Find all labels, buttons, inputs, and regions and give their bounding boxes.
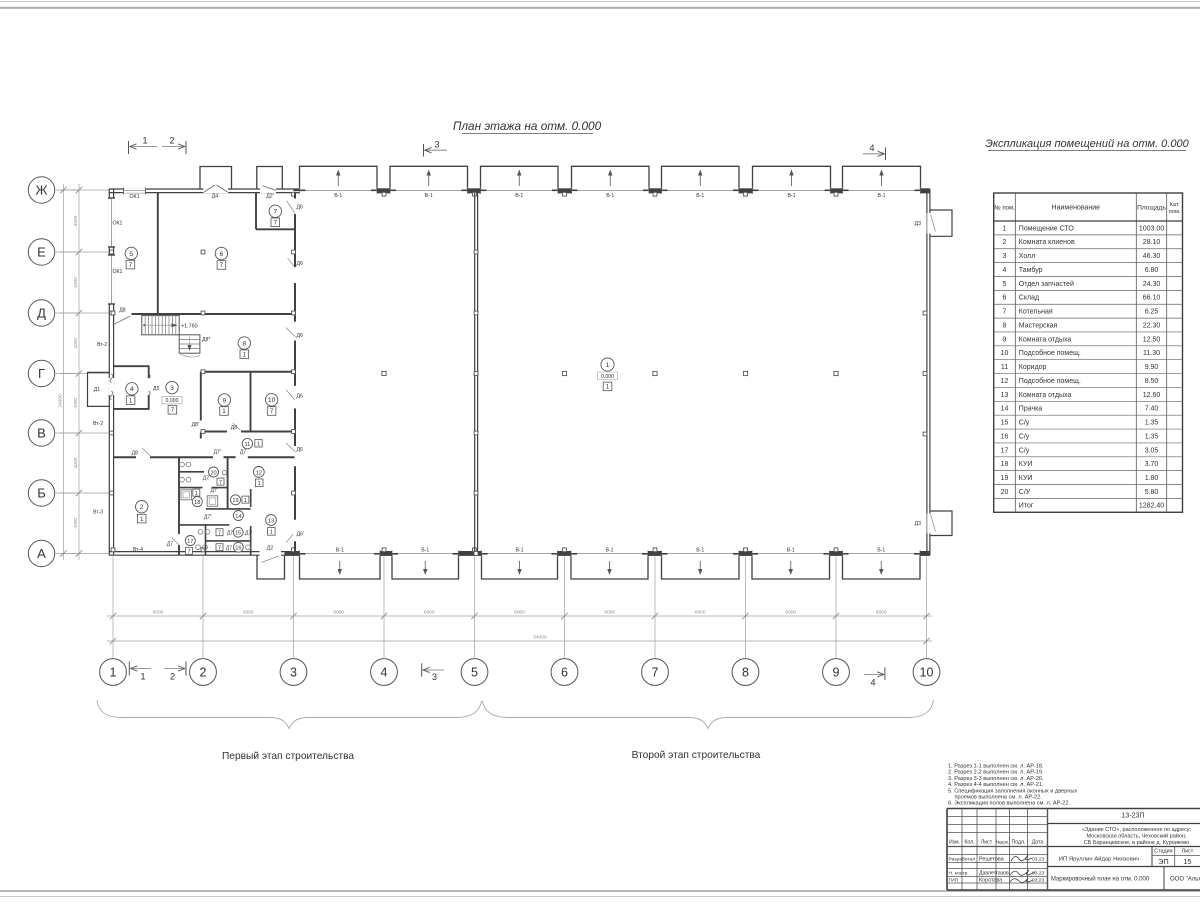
svg-text:6: 6	[220, 251, 224, 258]
svg-text:7: 7	[274, 220, 278, 227]
svg-text:12: 12	[256, 470, 262, 476]
svg-text:Помещение СТО: Помещение СТО	[1019, 225, 1075, 232]
svg-text:Д7": Д7"	[204, 515, 212, 521]
svg-text:СБ Баранцевское, в районе д. К: СБ Баранцевское, в районе д. Курниково	[1084, 839, 1189, 846]
svg-text:6000: 6000	[876, 610, 887, 616]
svg-text:28.10: 28.10	[1143, 239, 1161, 246]
svg-text:11: 11	[1001, 364, 1008, 371]
svg-text:1282.40: 1282.40	[1139, 503, 1164, 510]
svg-text:Д7: Д7	[226, 546, 232, 552]
svg-text:10: 10	[268, 397, 276, 404]
svg-text:1: 1	[270, 530, 273, 536]
svg-text:54000: 54000	[533, 635, 547, 641]
svg-text:1: 1	[606, 384, 610, 391]
svg-text:4000: 4000	[73, 277, 79, 288]
svg-text:7: 7	[218, 530, 221, 536]
svg-text:Д8: Д8	[119, 308, 126, 314]
svg-text:1: 1	[110, 666, 117, 680]
svg-text:Д8: Д8	[132, 451, 139, 457]
svg-text:03.23: 03.23	[1032, 871, 1045, 877]
svg-text:Подсобное помещ.: Подсобное помещ.	[1019, 349, 1081, 357]
svg-text:Комната клиенов: Комната клиенов	[1019, 239, 1075, 246]
svg-text:Экспликация помещений на отм.: Экспликация помещений на отм. 0.000	[985, 138, 1189, 150]
svg-text:4: 4	[869, 143, 874, 153]
svg-text:15: 15	[1001, 420, 1009, 427]
svg-text:17: 17	[1001, 447, 1009, 454]
svg-text:ГИП: ГИП	[949, 878, 959, 884]
svg-text:2: 2	[200, 666, 207, 680]
svg-text:1. Разрез 1-1 выполнен см. л.: 1. Разрез 1-1 выполнен см. л. АР-18.	[948, 764, 1044, 770]
svg-text:6000: 6000	[243, 610, 254, 616]
svg-text:Кат.: Кат.	[1170, 202, 1180, 208]
svg-text:2: 2	[1003, 239, 1007, 246]
svg-text:Д6: Д6	[297, 261, 304, 267]
svg-text:20: 20	[1001, 489, 1009, 496]
svg-text:В-1: В-1	[877, 548, 885, 554]
svg-text:Подл.: Подл.	[1012, 840, 1026, 846]
svg-text:Коридор: Коридор	[1019, 364, 1047, 371]
svg-text:3: 3	[1003, 253, 1007, 260]
svg-text:Подсобное помещ.: Подсобное помещ.	[1019, 377, 1081, 385]
svg-text:2: 2	[170, 672, 175, 682]
svg-text:20: 20	[210, 470, 216, 476]
svg-text:ЭП: ЭП	[1158, 857, 1169, 866]
svg-text:Тамбур: Тамбур	[1019, 266, 1043, 274]
svg-text:Вт-2: Вт-2	[97, 342, 107, 348]
svg-text:+1.760: +1.760	[181, 324, 198, 330]
svg-text:В-1: В-1	[336, 548, 344, 554]
svg-text:Прачка: Прачка	[1019, 406, 1043, 413]
svg-text:ОК1: ОК1	[130, 194, 140, 200]
svg-text:6. Экспликация полов выполнена: 6. Экспликация полов выполнена см. л. АР…	[948, 801, 1070, 807]
svg-text:16: 16	[235, 546, 241, 552]
svg-text:1.35: 1.35	[1145, 420, 1159, 427]
svg-text:Лист: Лист	[1182, 849, 1194, 855]
svg-text:19: 19	[232, 498, 238, 504]
svg-text:4000: 4000	[73, 215, 79, 226]
svg-text:Коротава: Коротава	[979, 878, 1002, 884]
svg-text:В-1: В-1	[425, 193, 433, 199]
svg-text:Вт-3: Вт-3	[93, 510, 103, 516]
svg-text:пом.: пом.	[1169, 209, 1181, 215]
svg-text:13: 13	[1001, 392, 1009, 399]
svg-text:7: 7	[188, 549, 191, 555]
svg-text:14: 14	[1001, 406, 1009, 413]
svg-text:1: 1	[606, 362, 610, 369]
svg-text:Д7': Д7'	[210, 488, 217, 494]
svg-text:4000: 4000	[73, 457, 79, 468]
svg-text:Д7: Д7	[167, 542, 173, 548]
svg-text:24000: 24000	[58, 394, 64, 408]
svg-text:С/у: С/у	[1019, 420, 1030, 427]
svg-text:7: 7	[219, 480, 222, 486]
svg-text:Д5: Д5	[153, 386, 160, 392]
svg-text:8: 8	[1003, 322, 1007, 329]
svg-text:4000: 4000	[73, 518, 79, 529]
svg-text:«Здание СТО», расположенное по: «Здание СТО», расположенное по адресу:	[1082, 827, 1192, 833]
svg-text:Д6': Д6'	[297, 531, 304, 537]
svg-text:7: 7	[220, 262, 224, 269]
svg-text:6000: 6000	[695, 610, 706, 616]
svg-text:№док.: №док.	[996, 840, 1009, 845]
svg-text:1: 1	[257, 442, 260, 448]
svg-text:6.25: 6.25	[1145, 309, 1159, 316]
svg-text:Д7': Д7'	[245, 531, 252, 537]
svg-text:3.70: 3.70	[1145, 461, 1159, 468]
svg-text:8: 8	[742, 666, 749, 680]
svg-text:5: 5	[129, 251, 133, 258]
svg-text:В-1: В-1	[606, 193, 614, 199]
svg-text:Д3: Д3	[915, 221, 922, 227]
svg-text:1: 1	[140, 516, 144, 523]
svg-text:Д2: Д2	[267, 546, 274, 552]
svg-text:15: 15	[1183, 857, 1191, 866]
svg-text:12.50: 12.50	[1143, 336, 1161, 343]
svg-text:Изм.: Изм.	[949, 840, 960, 846]
svg-text:Г: Г	[38, 366, 45, 381]
svg-text:Д2': Д2'	[266, 194, 273, 200]
svg-text:Вт-2: Вт-2	[93, 421, 103, 427]
svg-text:Д8': Д8'	[192, 422, 199, 428]
svg-text:2: 2	[140, 504, 144, 511]
svg-text:Мастерская: Мастерская	[1019, 322, 1058, 329]
svg-text:3: 3	[434, 140, 439, 150]
svg-text:6.80: 6.80	[1145, 267, 1159, 274]
svg-text:Решетова: Решетова	[979, 857, 1004, 863]
svg-text:1: 1	[142, 136, 147, 146]
svg-text:0.000: 0.000	[601, 374, 614, 380]
svg-text:6000: 6000	[333, 610, 344, 616]
svg-text:Д6: Д6	[297, 394, 304, 400]
svg-text:5: 5	[1003, 281, 1007, 288]
svg-text:5.80: 5.80	[1145, 489, 1159, 496]
svg-text:4: 4	[130, 386, 134, 393]
svg-text:В-1: В-1	[605, 548, 613, 554]
svg-text:03.23: 03.23	[1032, 878, 1045, 884]
svg-text:проемов выполнена см. л. АР-22: проемов выполнена см. л. АР-22.	[955, 795, 1043, 801]
svg-text:ОК1: ОК1	[113, 269, 123, 275]
svg-text:9: 9	[223, 397, 227, 404]
svg-text:1: 1	[1003, 225, 1007, 232]
svg-text:Стадия: Стадия	[1154, 849, 1172, 855]
svg-text:7: 7	[652, 666, 659, 680]
svg-text:5: 5	[471, 666, 478, 680]
svg-text:9: 9	[833, 666, 840, 680]
svg-text:Д7: Д7	[227, 531, 233, 537]
svg-text:24.30: 24.30	[1143, 281, 1161, 288]
svg-text:12.60: 12.60	[1143, 392, 1161, 399]
svg-text:Д4: Д4	[212, 194, 219, 200]
svg-text:6000: 6000	[424, 610, 435, 616]
svg-text:2: 2	[169, 136, 174, 146]
svg-text:6000: 6000	[514, 610, 525, 616]
svg-text:Второй этап строительства: Второй этап строительства	[632, 750, 761, 761]
svg-text:4000: 4000	[73, 398, 79, 409]
svg-text:В-1: В-1	[515, 193, 523, 199]
svg-text:13-23П: 13-23П	[1122, 812, 1145, 819]
svg-text:Маркировочный план на отм. 0.0: Маркировочный план на отм. 0.000	[1051, 876, 1150, 883]
svg-text:Б: Б	[37, 486, 46, 501]
svg-text:6000: 6000	[785, 610, 796, 616]
svg-text:4: 4	[381, 666, 388, 680]
svg-text:3: 3	[290, 666, 297, 680]
svg-text:6: 6	[1003, 295, 1007, 302]
svg-text:Котельная: Котельная	[1019, 309, 1053, 316]
svg-text:1.80: 1.80	[1145, 475, 1159, 482]
svg-text:9.90: 9.90	[1145, 364, 1159, 371]
svg-text:Холл: Холл	[1019, 253, 1036, 260]
svg-text:Д7: Д7	[203, 476, 209, 482]
svg-text:12: 12	[1001, 378, 1009, 385]
svg-text:В-1: В-1	[334, 193, 342, 199]
svg-text:7: 7	[129, 262, 133, 269]
svg-text:7: 7	[1003, 309, 1007, 316]
svg-text:Ж: Ж	[35, 183, 47, 198]
svg-text:0.000: 0.000	[166, 398, 179, 404]
svg-text:Д1: Д1	[94, 387, 101, 393]
svg-text:ИП Яруллин Айдар Ниязович: ИП Яруллин Айдар Ниязович	[1059, 856, 1139, 863]
svg-text:6: 6	[561, 666, 568, 680]
svg-text:Итог: Итог	[1019, 503, 1034, 510]
svg-text:5. Спецификация заполнения око: 5. Спецификация заполнения оконных и две…	[948, 788, 1077, 794]
svg-text:Д6: Д6	[297, 333, 304, 339]
svg-text:КУИ: КУИ	[1019, 461, 1033, 468]
svg-text:Д7: Д7	[240, 450, 246, 456]
svg-text:1.35: 1.35	[1145, 433, 1159, 440]
svg-text:1: 1	[129, 397, 133, 404]
svg-text:Московская область, Чеховский: Московская область, Чеховский район,	[1087, 833, 1187, 840]
svg-text:4. Разрез 4-4 выполнен см. л.: 4. Разрез 4-4 выполнен см. л. АР-21.	[948, 782, 1044, 788]
svg-text:4000: 4000	[73, 338, 79, 349]
svg-text:ОК1: ОК1	[113, 221, 123, 227]
svg-text:11.30: 11.30	[1143, 350, 1160, 357]
svg-text:9: 9	[1003, 336, 1007, 343]
svg-text:В-1: В-1	[421, 548, 429, 554]
svg-text:КУИ: КУИ	[1019, 475, 1033, 482]
svg-text:3. Разрез 3-3 выполнен см. л.: 3. Разрез 3-3 выполнен см. л. АР-20.	[948, 776, 1044, 782]
svg-text:Е: Е	[37, 245, 46, 260]
svg-text:В-1: В-1	[787, 193, 795, 199]
svg-text:1003.00: 1003.00	[1139, 225, 1164, 232]
svg-text:Д8*: Д8*	[202, 337, 210, 343]
svg-text:15: 15	[235, 531, 241, 537]
svg-text:3: 3	[170, 385, 174, 392]
svg-text:Отдел запчастей: Отдел запчастей	[1019, 280, 1074, 288]
svg-text:16: 16	[1001, 433, 1009, 440]
svg-text:2. Разрез 2-2 выполнен см. л.: 2. Разрез 2-2 выполнен см. л. АР-19.	[948, 770, 1044, 776]
svg-text:1: 1	[244, 498, 247, 504]
svg-text:4: 4	[870, 677, 875, 687]
svg-text:Д7": Д7"	[214, 450, 222, 456]
svg-text:Д3: Д3	[915, 521, 922, 527]
svg-text:В-1: В-1	[515, 548, 523, 554]
svg-text:1: 1	[258, 481, 261, 487]
svg-text:С/у: С/у	[1019, 433, 1030, 440]
svg-text:Вт-4: Вт-4	[133, 547, 143, 553]
svg-text:С/у: С/у	[1019, 447, 1030, 454]
svg-text:План этажа на отм. 0.000: План этажа на отм. 0.000	[453, 119, 602, 133]
svg-text:С/У: С/У	[1019, 489, 1031, 496]
svg-text:17: 17	[187, 539, 193, 545]
svg-text:1: 1	[243, 351, 247, 358]
svg-text:7.40: 7.40	[1145, 406, 1159, 413]
svg-text:11: 11	[244, 442, 250, 448]
svg-text:7: 7	[273, 209, 277, 216]
svg-text:Склад: Склад	[1019, 295, 1039, 302]
svg-text:19: 19	[1001, 475, 1009, 482]
svg-text:1: 1	[140, 672, 145, 682]
svg-text:№ пом.: № пом.	[994, 204, 1015, 211]
svg-text:Наименование: Наименование	[1052, 204, 1101, 211]
svg-text:В-1: В-1	[696, 193, 704, 199]
svg-text:В-1: В-1	[787, 548, 795, 554]
svg-text:Комната отдыха: Комната отдыха	[1019, 336, 1072, 343]
svg-text:В-1: В-1	[696, 548, 704, 554]
svg-text:22.30: 22.30	[1143, 322, 1161, 329]
svg-text:10: 10	[1001, 350, 1009, 357]
svg-text:14: 14	[235, 514, 241, 520]
svg-text:Н. контр.: Н. контр.	[949, 871, 969, 877]
svg-text:Комната отдыха: Комната отдыха	[1019, 392, 1072, 399]
svg-text:6000: 6000	[604, 610, 615, 616]
svg-text:46.30: 46.30	[1143, 253, 1161, 260]
svg-text:7: 7	[218, 545, 221, 551]
svg-text:4: 4	[1003, 267, 1007, 274]
svg-text:ООО "Альянс": ООО "Альянс"	[1170, 877, 1200, 883]
svg-text:8.50: 8.50	[1145, 378, 1159, 385]
svg-text:Площадь: Площадь	[1137, 204, 1166, 211]
svg-text:03.23: 03.23	[1032, 857, 1045, 863]
svg-text:Первый этап строительства: Первый этап строительства	[222, 751, 354, 762]
svg-text:8: 8	[242, 340, 246, 347]
svg-text:18: 18	[1001, 461, 1009, 468]
svg-text:10: 10	[920, 666, 934, 680]
svg-text:В-1: В-1	[877, 193, 885, 199]
svg-text:Д: Д	[37, 306, 46, 321]
svg-text:7: 7	[171, 407, 175, 414]
svg-text:Давлетгазов: Давлетгазов	[979, 871, 1009, 877]
svg-text:Дата: Дата	[1032, 840, 1044, 846]
svg-text:Лист: Лист	[981, 840, 993, 846]
svg-text:7: 7	[270, 408, 274, 415]
svg-text:1: 1	[195, 491, 198, 497]
svg-text:Д6: Д6	[297, 205, 304, 211]
svg-text:Д6: Д6	[297, 447, 304, 453]
svg-text:18: 18	[194, 500, 200, 506]
svg-text:13: 13	[268, 518, 274, 524]
svg-text:А: А	[37, 546, 46, 561]
svg-text:6000: 6000	[153, 610, 164, 616]
svg-text:Разработал: Разработал	[949, 857, 976, 863]
svg-text:Кол.: Кол.	[964, 840, 974, 846]
svg-text:3: 3	[432, 672, 437, 682]
svg-text:66.10: 66.10	[1143, 295, 1161, 302]
svg-text:3.05: 3.05	[1145, 447, 1159, 454]
svg-text:1: 1	[222, 408, 226, 415]
svg-text:В: В	[37, 426, 46, 441]
